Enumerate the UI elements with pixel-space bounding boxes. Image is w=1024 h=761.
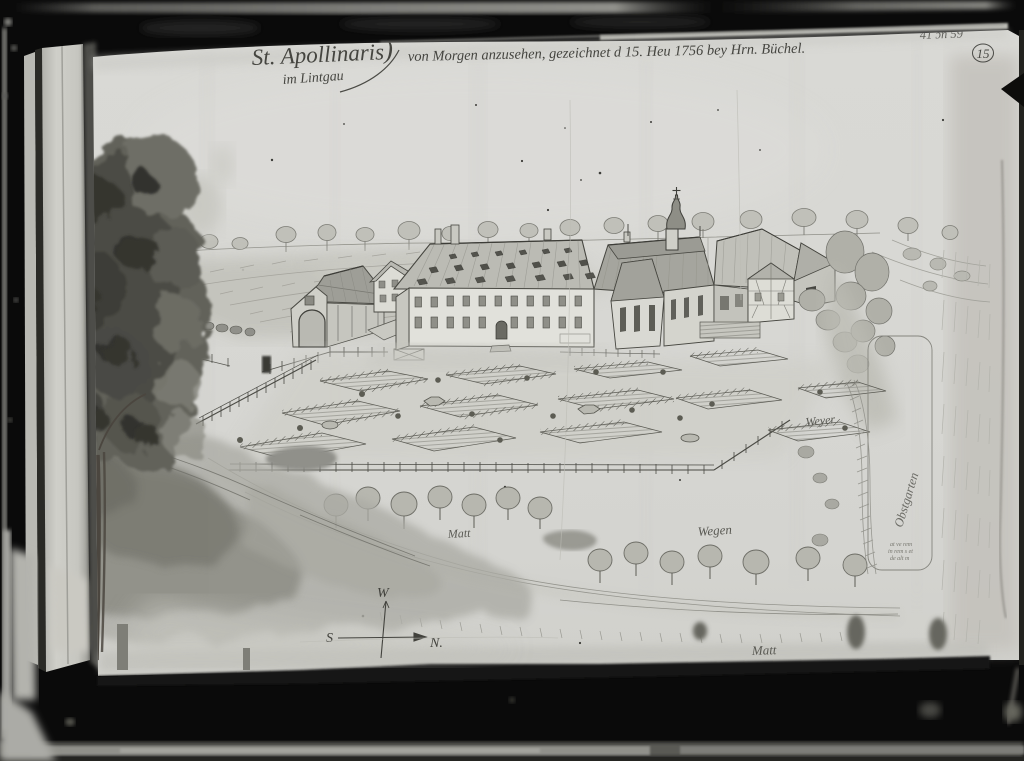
svg-text:15: 15 [977, 46, 991, 61]
svg-text:Wegen: Wegen [697, 522, 732, 539]
svg-text:in rem s et: in rem s et [888, 549, 913, 555]
svg-text:W: W [377, 586, 390, 601]
svg-text:Matt: Matt [446, 526, 471, 541]
svg-text:S: S [326, 631, 333, 646]
svg-text:at ve rem: at ve rem [890, 542, 913, 548]
svg-text:de alt m: de alt m [890, 556, 910, 562]
svg-text:Matt: Matt [751, 642, 777, 658]
